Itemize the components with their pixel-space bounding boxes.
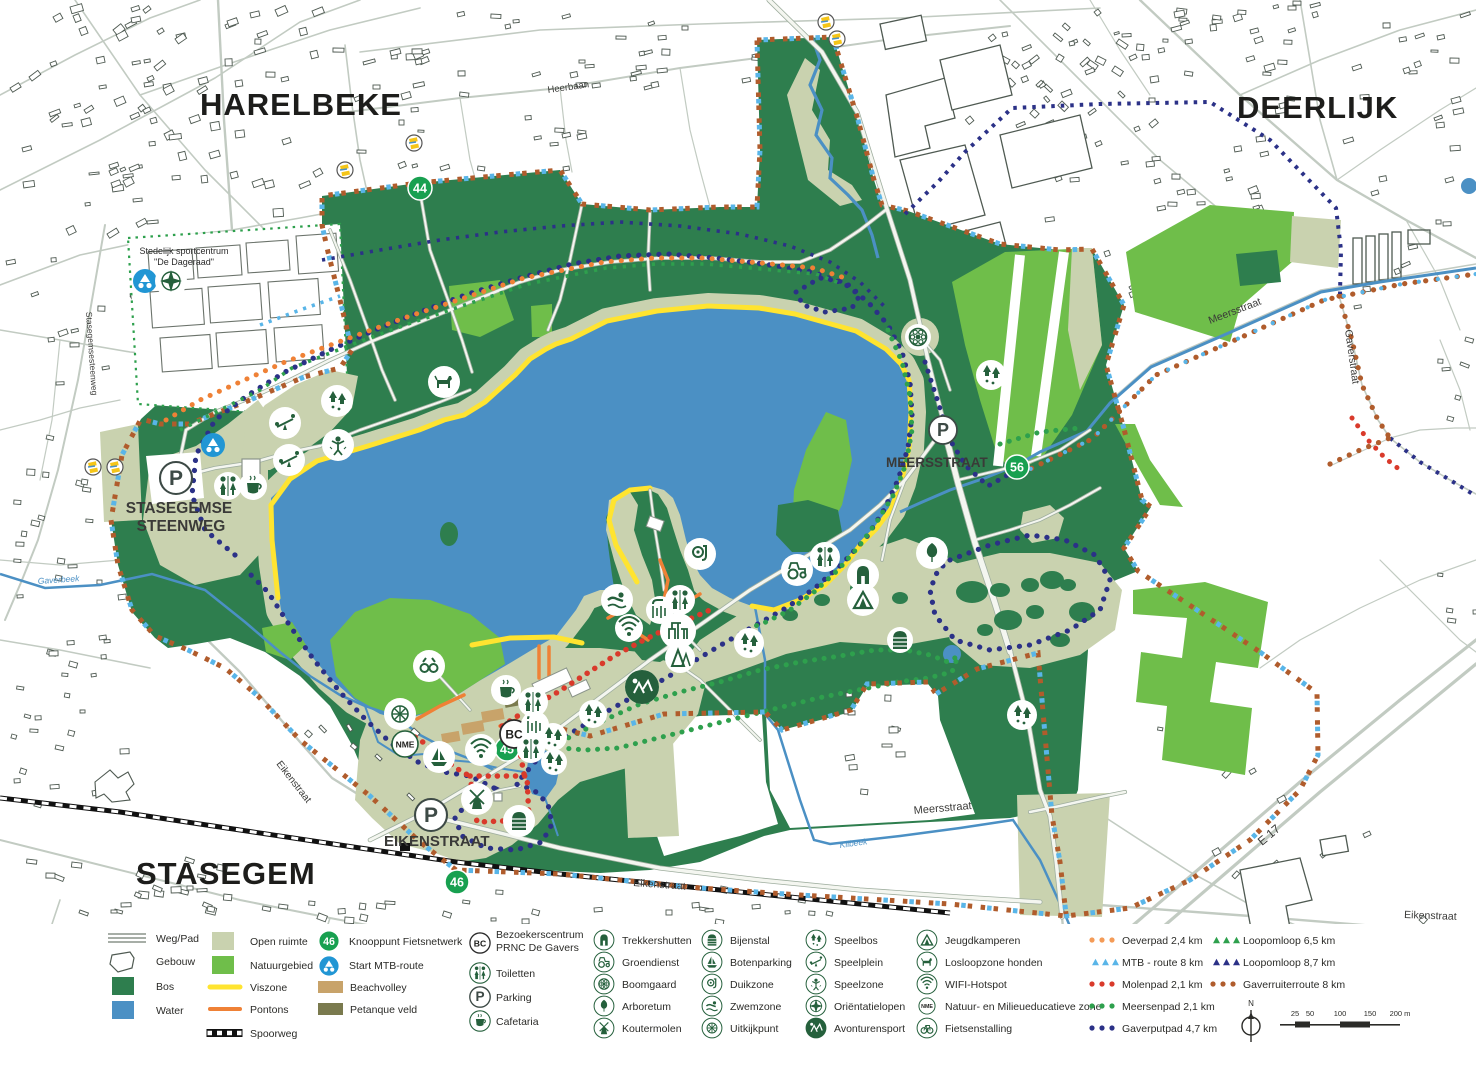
svg-text:"De Dageraad": "De Dageraad" bbox=[154, 257, 214, 267]
svg-text:DEERLIJK: DEERLIJK bbox=[1237, 90, 1398, 125]
svg-text:P: P bbox=[937, 420, 949, 440]
svg-text:EIKENSTRAAT: EIKENSTRAAT bbox=[384, 833, 490, 850]
svg-text:Groendienst: Groendienst bbox=[622, 957, 679, 969]
svg-text:Losloopzone honden: Losloopzone honden bbox=[945, 957, 1043, 969]
svg-text:Koutermolen: Koutermolen bbox=[622, 1023, 682, 1035]
svg-text:Uitkijkpunt: Uitkijkpunt bbox=[730, 1023, 779, 1035]
svg-text:Petanque veld: Petanque veld bbox=[350, 1004, 417, 1016]
svg-text:P: P bbox=[169, 467, 183, 490]
svg-text:Avonturensport: Avonturensport bbox=[834, 1023, 905, 1035]
svg-text:Duikzone: Duikzone bbox=[730, 979, 774, 991]
svg-text:WIFI-Hotspot: WIFI-Hotspot bbox=[945, 979, 1007, 991]
svg-text:Loopomloop 8,7 km: Loopomloop 8,7 km bbox=[1243, 957, 1335, 969]
svg-text:Gebouw: Gebouw bbox=[156, 956, 196, 968]
svg-text:Knooppunt Fietsnetwerk: Knooppunt Fietsnetwerk bbox=[349, 936, 463, 948]
svg-text:Natuur- en Milieueducatieve zo: Natuur- en Milieueducatieve zone bbox=[945, 1001, 1102, 1013]
svg-text:P: P bbox=[424, 804, 438, 827]
svg-text:Meersenpad 2,1 km: Meersenpad 2,1 km bbox=[1122, 1001, 1215, 1013]
svg-text:Toiletten: Toiletten bbox=[496, 968, 535, 980]
svg-text:Beachvolley: Beachvolley bbox=[350, 982, 407, 994]
svg-text:HARELBEKE: HARELBEKE bbox=[200, 87, 402, 122]
svg-text:25: 25 bbox=[1291, 1009, 1299, 1018]
svg-text:100: 100 bbox=[1334, 1009, 1347, 1018]
svg-text:MTB - route 8 km: MTB - route 8 km bbox=[1122, 957, 1203, 969]
svg-text:Stedelijk sportcentrum: Stedelijk sportcentrum bbox=[139, 246, 228, 256]
svg-text:Gaverputpad 4,7 km: Gaverputpad 4,7 km bbox=[1122, 1023, 1217, 1035]
svg-text:Oriëntatielopen: Oriëntatielopen bbox=[834, 1001, 905, 1013]
svg-text:Speelbos: Speelbos bbox=[834, 935, 878, 947]
svg-text:56: 56 bbox=[1010, 461, 1024, 475]
svg-text:Bos: Bos bbox=[156, 981, 174, 993]
svg-text:Bezoekerscentrum: Bezoekerscentrum bbox=[496, 929, 584, 941]
svg-text:50: 50 bbox=[1306, 1009, 1314, 1018]
svg-text:Zwemzone: Zwemzone bbox=[730, 1001, 782, 1013]
svg-text:Open ruimte: Open ruimte bbox=[250, 936, 308, 948]
svg-text:44: 44 bbox=[413, 182, 427, 196]
svg-text:Start MTB-route: Start MTB-route bbox=[349, 960, 424, 972]
svg-text:200 m: 200 m bbox=[1390, 1009, 1411, 1018]
svg-text:Arboretum: Arboretum bbox=[622, 1001, 671, 1013]
svg-text:P: P bbox=[475, 989, 484, 1004]
svg-text:Parking: Parking bbox=[496, 992, 532, 1004]
svg-text:Pontons: Pontons bbox=[250, 1004, 289, 1016]
svg-text:Eikenstraat: Eikenstraat bbox=[1404, 909, 1457, 923]
svg-text:PRNC De Gavers: PRNC De Gavers bbox=[496, 942, 579, 954]
svg-text:Trekkershutten: Trekkershutten bbox=[622, 935, 692, 947]
svg-text:BC: BC bbox=[505, 728, 523, 742]
svg-text:Water: Water bbox=[156, 1005, 184, 1017]
svg-text:Bijenstal: Bijenstal bbox=[730, 935, 770, 947]
svg-text:NME: NME bbox=[396, 740, 415, 750]
svg-text:Molenpad 2,1 km: Molenpad 2,1 km bbox=[1122, 979, 1203, 991]
svg-text:Gaverruiterroute 8 km: Gaverruiterroute 8 km bbox=[1243, 979, 1345, 991]
svg-text:MEERSSTRAAT: MEERSSTRAAT bbox=[886, 455, 989, 470]
svg-text:Spoorweg: Spoorweg bbox=[250, 1028, 297, 1040]
svg-text:Cafetaria: Cafetaria bbox=[496, 1016, 539, 1028]
svg-text:Speelzone: Speelzone bbox=[834, 979, 884, 991]
svg-text:Fietsenstalling: Fietsenstalling bbox=[945, 1023, 1012, 1035]
svg-text:46: 46 bbox=[450, 876, 464, 890]
svg-text:46: 46 bbox=[323, 936, 335, 948]
svg-text:NME: NME bbox=[921, 1004, 933, 1010]
svg-text:N: N bbox=[1248, 999, 1254, 1008]
svg-text:Oeverpad 2,4 km: Oeverpad 2,4 km bbox=[1122, 935, 1203, 947]
svg-text:Loopomloop 6,5 km: Loopomloop 6,5 km bbox=[1243, 935, 1335, 947]
svg-text:STASEGEM: STASEGEM bbox=[136, 856, 316, 891]
svg-text:Natuurgebied: Natuurgebied bbox=[250, 960, 313, 972]
svg-text:STASEGEMSE: STASEGEMSE bbox=[126, 500, 233, 517]
svg-text:BC: BC bbox=[474, 938, 486, 948]
svg-text:150: 150 bbox=[1364, 1009, 1377, 1018]
svg-text:STEENWEG: STEENWEG bbox=[137, 518, 226, 535]
svg-text:Speelplein: Speelplein bbox=[834, 957, 883, 969]
svg-text:Viszone: Viszone bbox=[250, 982, 287, 994]
svg-text:Jeugdkamperen: Jeugdkamperen bbox=[945, 935, 1020, 947]
svg-text:Boomgaard: Boomgaard bbox=[622, 979, 676, 991]
svg-text:Botenparking: Botenparking bbox=[730, 957, 792, 969]
svg-text:Weg/Pad: Weg/Pad bbox=[156, 933, 199, 945]
